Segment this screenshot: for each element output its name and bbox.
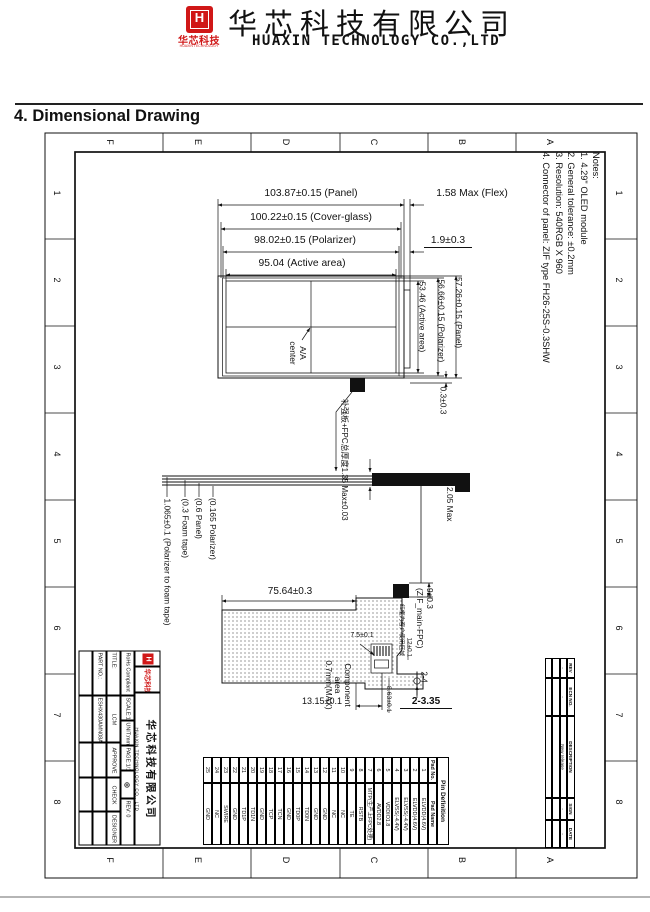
pin-no: 18 (266, 757, 275, 783)
rev-row-1 (552, 658, 559, 848)
pin-no: 3 (401, 757, 410, 783)
title-block-brand-cn: 华芯科技 (134, 666, 160, 692)
pin-row: 7MTP(生产上FPC处理) (365, 757, 374, 845)
title-block: H 华芯科技 华芯科技有限公司 HUAXIN TECHNOLOGY CO., L… (78, 650, 160, 845)
zone-number-left-3: 3 (52, 361, 62, 373)
pin-row: 21TD1P (239, 757, 248, 845)
zone-number-right-8: 8 (614, 796, 624, 808)
rev-header-SIGN: SIGN (567, 798, 575, 820)
datasheet-page: { "colors": {"brand_red": "#d01717", "li… (0, 0, 650, 912)
pin-no: 10 (338, 757, 347, 783)
pin-no: 20 (248, 757, 257, 783)
rev-cell (545, 658, 552, 678)
approve-label: APPROVE (106, 742, 120, 777)
pin-definition-table: Pin DefinitionPad No.Pad Name1ELVDD(4.6V… (203, 757, 449, 845)
pin-name: GND (311, 783, 320, 845)
dim-total-thickness: 2.05 Max (442, 487, 454, 537)
pin-no: 6 (374, 757, 383, 783)
rev-cell (545, 820, 552, 848)
zone-number-right-7: 7 (614, 709, 624, 721)
zone-number-left-5: 5 (52, 535, 62, 547)
zone-number-right-3: 3 (614, 361, 624, 373)
pin-col-no: Pad No. (428, 757, 437, 783)
pin-no: 8 (356, 757, 365, 783)
pin-no: 21 (239, 757, 248, 783)
zone-letter-bottom-C: C (369, 854, 379, 866)
pin-row: 12GND (320, 757, 329, 845)
zone-number-right-2: 2 (614, 274, 624, 286)
rev-cell: - (560, 678, 567, 716)
pin-no: 16 (284, 757, 293, 783)
pin-no: 11 (329, 757, 338, 783)
pin-row: 15TD0P (293, 757, 302, 845)
pin-no: 23 (221, 757, 230, 783)
check-label: CHECK (106, 777, 120, 811)
rev-cell (552, 798, 559, 820)
pin-name: NC (212, 783, 221, 845)
pin-name: NC (338, 783, 347, 845)
dim-polarizer-width: 98.02±0.15 (Polarizer) (205, 236, 405, 247)
designer-label: DESIGNER (106, 811, 120, 845)
title-label: TITLE: (106, 650, 120, 695)
aa-center-label: A/A center (283, 335, 307, 371)
pin-row: 8RSTB (356, 757, 365, 845)
dim-polarizer-height: 56.66±0.15 (Polarizer) (433, 279, 445, 384)
rev-cell (552, 658, 559, 678)
dim-active-height: 53.46 (Active area) (414, 281, 426, 376)
rev-row-2 (545, 658, 552, 848)
layer-foam-label: (0.3 Foam tape) (177, 498, 189, 593)
zone-letter-top-C: C (369, 136, 379, 148)
pin-name: AVDD2.8 (374, 783, 383, 845)
note-line-0: Notes: (590, 152, 602, 482)
pin-row: 13GND (311, 757, 320, 845)
dim-2-4: 2-4 (417, 671, 427, 695)
pin-name: TD1N (248, 783, 257, 845)
pin-name: TD1P (239, 783, 248, 845)
rev-cell: - (560, 798, 567, 820)
scale-label: SCALE:1/1 (120, 695, 134, 720)
rohs-label: RoHs Compliant (120, 650, 134, 695)
zone-letter-bottom-D: D (281, 854, 291, 866)
pin-row: 2ELVDD(4.6V) (410, 757, 419, 845)
rev-header-DESCRIPTION: DESCRIPTION (567, 716, 575, 798)
note-line-2: 2. General tolerance: ±0.2mm (565, 152, 577, 482)
zone-number-left-1: 1 (52, 187, 62, 199)
rev-cell (552, 678, 559, 716)
pin-row: 18TCP (266, 757, 275, 845)
pin-no: 25 (203, 757, 212, 783)
pin-no: 15 (293, 757, 302, 783)
pin-row: 24NC (212, 757, 221, 845)
pin-row: 11NC (329, 757, 338, 845)
rev-cell (545, 678, 552, 716)
dim-7-5: 7.5±0.1 (340, 632, 384, 639)
rev-cell (545, 716, 552, 798)
dim-fpc-width: 75.64±0.3 (240, 587, 340, 598)
pin-name: SWIRE (221, 783, 230, 845)
pin-col-name: Pad Name (428, 783, 437, 845)
zone-letter-bottom-A: A (545, 854, 555, 866)
pin-row: 22GND (230, 757, 239, 845)
rev-cell: New release (560, 716, 567, 798)
pin-row: 17TCN (275, 757, 284, 845)
pin-row: 14TD0N (302, 757, 311, 845)
pin-row: 4ELVSS(-4.4V) (392, 757, 401, 845)
pin-no: 24 (212, 757, 221, 783)
pin-name: NC (329, 783, 338, 845)
pin-row: 10NC (338, 757, 347, 845)
zone-number-right-1: 1 (614, 187, 624, 199)
pin-name: TD0N (302, 783, 311, 845)
pin-no: 14 (302, 757, 311, 783)
unit-label: UNIT:mm (120, 720, 134, 745)
rev-cell: - (560, 658, 567, 678)
layer-panel-label: (0.6 Panel) (191, 498, 203, 570)
pin-name: TD0P (293, 783, 302, 845)
zone-number-left-2: 2 (52, 274, 62, 286)
pin-no: 2 (410, 757, 419, 783)
pin-no: 4 (392, 757, 401, 783)
dim-panel-width: 103.87±0.15 (Panel) (230, 189, 392, 200)
pin-name: TE (347, 783, 356, 845)
pin-name: ELVSS(-4.4V) (401, 783, 410, 845)
dim-active-width: 95.04 (Active area) (202, 259, 402, 270)
zone-number-left-8: 8 (52, 796, 62, 808)
pin-name: VDDIO1.8 (383, 783, 392, 845)
pin-name: GND (203, 783, 212, 845)
rev-header-DATE: DATE (567, 820, 575, 848)
rev-cell (552, 716, 559, 798)
pin-table-title: Pin Definition (437, 757, 449, 845)
pin-row: 6AVDD2.8 (374, 757, 383, 845)
rev-header-ECN NO.: ECN NO. (567, 678, 575, 716)
zone-letter-top-E: E (193, 136, 203, 148)
zone-letter-bottom-B: B (457, 854, 467, 866)
pin-row: 3ELVSS(-4.4V) (401, 757, 410, 845)
layer-polarizer-label: (0.165 Polarizer) (205, 498, 217, 598)
zone-letter-bottom-E: E (193, 854, 203, 866)
title-block-company-cn: 华芯科技有限公司 (143, 694, 156, 844)
dim-8-63: 8.63±0.1 (382, 686, 392, 724)
title-block-company-en: HUAXIN TECHNOLOGY CO., LTD (134, 694, 143, 844)
pin-no: 9 (347, 757, 356, 783)
zone-letter-top-D: D (281, 136, 291, 148)
projection-symbol-icon: ⊕ (120, 770, 134, 798)
dim-flex-width: 1.9±0.3 (424, 236, 472, 248)
dim-offset: 0.3±0.3 (436, 386, 447, 422)
rev-label: REV: 0 (120, 798, 134, 845)
zone-number-right-6: 6 (614, 622, 624, 634)
part-no-label: PART NO.: (92, 650, 106, 695)
pin-name: GND (320, 783, 329, 845)
pin-name: GND (257, 783, 266, 845)
fpc-thickness-note: 补强板+FPC总厚度1.35 Max±0.03 (337, 399, 349, 549)
pin-row: 25GND (203, 757, 212, 845)
pin-row: 20TD1N (248, 757, 257, 845)
dim-cover-width: 100.22±0.15 (Cover-glass) (211, 213, 411, 224)
rev-cell (545, 798, 552, 820)
pin-name: ELVSS(-4.4V) (392, 783, 401, 845)
zone-letter-bottom-F: F (105, 854, 115, 866)
pin-no: 5 (383, 757, 392, 783)
rev-header-REV: REV (567, 658, 575, 678)
zone-number-right-4: 4 (614, 448, 624, 460)
notes-block: Notes:1. 4.29" OLED module2. General tol… (540, 152, 602, 482)
note-line-1: 1. 4.29" OLED module (577, 152, 589, 482)
zone-number-left-4: 4 (52, 448, 62, 460)
component-area-label: Component area 0.7mm(MAX) (316, 646, 352, 724)
layer-total-label: 1.065±0.1 (Polarizer to foam tape) (159, 498, 171, 713)
zone-letter-top-B: B (457, 136, 467, 148)
pin-row: 5VDDIO1.8 (383, 757, 392, 845)
title-block-logo-icon: H (134, 650, 160, 666)
rev-header-row: REVECN NO.DESCRIPTIONSIGNDATE (567, 658, 575, 848)
rev-cell: - (560, 820, 567, 848)
note-line-4: 4. Connector of panel: ZIF type FH26-25S… (540, 152, 552, 482)
pin-name: MTP(生产上FPC处理) (365, 783, 374, 845)
zone-number-right-5: 5 (614, 535, 624, 547)
zone-letter-top-F: F (105, 136, 115, 148)
pin-no: 1 (419, 757, 428, 783)
zone-number-left-6: 6 (52, 622, 62, 634)
pin-no: 22 (230, 757, 239, 783)
dim-holes: 2-3.35 (400, 697, 452, 709)
pin-name: ELVDD(4.6V) (410, 783, 419, 845)
dim-12: 12±0.1 (403, 637, 412, 663)
title-value: LCM (106, 695, 120, 742)
pin-name: ELVDD(4.6V) (419, 783, 428, 845)
pin-name: RSTB (356, 783, 365, 845)
pin-row: 1ELVDD(4.6V) (419, 757, 428, 845)
pin-row: 16GND (284, 757, 293, 845)
pin-row: 19GND (257, 757, 266, 845)
pin-table-header: Pad No.Pad Name (428, 757, 437, 845)
page-label: PAGE:1/1 (120, 745, 134, 770)
revision-table: REVECN NO.DESCRIPTIONSIGNDATE--New relea… (545, 658, 575, 848)
pin-name: TCN (275, 783, 284, 845)
pin-row: 9TE (347, 757, 356, 845)
pin-no: 13 (311, 757, 320, 783)
dim-flex: 1.58 Max (Flex) (420, 189, 524, 200)
pin-no: 17 (275, 757, 284, 783)
pin-no: 7 (365, 757, 374, 783)
pin-name: TCP (266, 783, 275, 845)
pin-no: 19 (257, 757, 266, 783)
pin-name: GND (230, 783, 239, 845)
dim-panel-height: 57.26±0.15 (Panel) (451, 277, 463, 381)
rev-row-0: --New release-- (560, 658, 567, 848)
zone-letter-top-A: A (545, 136, 555, 148)
pin-name: GND (284, 783, 293, 845)
pin-row: 23SWIRE (221, 757, 230, 845)
pin-no: 12 (320, 757, 329, 783)
zone-number-left-7: 7 (52, 709, 62, 721)
dim-13-15: 13.15±0.1 (282, 697, 362, 706)
note-line-3: 3. Resolution: 540RGB X 960 (552, 152, 564, 482)
rev-cell (552, 820, 559, 848)
part-no-value: ESHX430AMN08A (92, 695, 106, 742)
